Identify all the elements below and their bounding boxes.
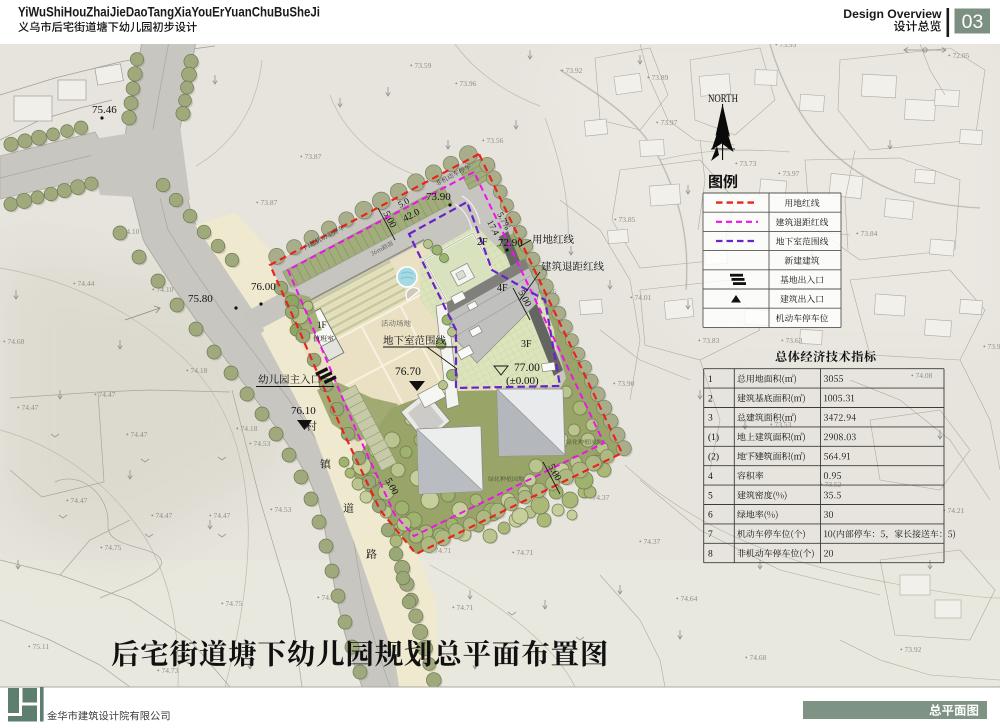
- svg-text:(2): (2): [708, 452, 719, 463]
- svg-text:2F: 2F: [477, 237, 488, 248]
- svg-text:75.46: 75.46: [92, 104, 117, 116]
- svg-text:• 74.75: • 74.75: [221, 599, 243, 608]
- svg-text:• 73.97: • 73.97: [778, 169, 800, 178]
- svg-text:• 73.73: • 73.73: [735, 159, 757, 168]
- svg-text:• 73.97: • 73.97: [656, 118, 678, 127]
- svg-text:• 74.53: • 74.53: [270, 505, 292, 514]
- svg-text:• 74.21: • 74.21: [943, 506, 965, 515]
- svg-text:• 75.11: • 75.11: [28, 642, 49, 651]
- svg-text:• 73.56: • 73.56: [482, 136, 504, 145]
- svg-text:• 73.83: • 73.83: [698, 336, 720, 345]
- svg-text:• 74.73: • 74.73: [157, 666, 179, 675]
- svg-text:76.10: 76.10: [291, 405, 316, 417]
- svg-text:• 73.92: • 73.92: [983, 342, 1000, 351]
- svg-text:• 74.47: • 74.47: [209, 511, 231, 520]
- svg-text:YiWuShiHouZhaiJieDaoTangXiaYou: YiWuShiHouZhaiJieDaoTangXiaYouErYuanChuB…: [18, 4, 320, 20]
- svg-text:3: 3: [708, 414, 713, 424]
- svg-text:• 74.47: • 74.47: [151, 511, 173, 520]
- svg-text:• 73.84: • 73.84: [856, 229, 878, 238]
- svg-text:• 74.37: • 74.37: [639, 537, 661, 546]
- svg-text:75.80: 75.80: [188, 293, 213, 305]
- svg-text:3F: 3F: [521, 339, 532, 350]
- svg-text:• 74.47: • 74.47: [17, 403, 39, 412]
- svg-text:5: 5: [708, 491, 713, 501]
- svg-text:1: 1: [708, 375, 713, 385]
- svg-text:• 74.71: • 74.71: [452, 603, 474, 612]
- svg-text:NORTH: NORTH: [708, 93, 738, 105]
- svg-text:• 73.63: • 73.63: [781, 336, 803, 345]
- svg-text:77.00: 77.00: [514, 362, 540, 374]
- svg-text:1F: 1F: [317, 320, 327, 330]
- svg-text:4: 4: [708, 472, 713, 482]
- svg-text:72.90: 72.90: [498, 237, 523, 249]
- svg-text:• 74.44: • 74.44: [73, 279, 95, 288]
- svg-text:2: 2: [708, 394, 713, 404]
- svg-text:• 73.87: • 73.87: [300, 152, 322, 161]
- svg-text:7: 7: [708, 530, 713, 540]
- svg-text:• 73.59: • 73.59: [410, 61, 432, 70]
- svg-text:76.00: 76.00: [251, 281, 276, 293]
- svg-text:• 74.18: • 74.18: [236, 424, 258, 433]
- svg-text:• 73.89: • 73.89: [647, 73, 669, 82]
- svg-text:• 73.87: • 73.87: [256, 198, 278, 207]
- svg-text:• 73.90: • 73.90: [613, 379, 635, 388]
- svg-text:• 74.08: • 74.08: [911, 371, 933, 380]
- svg-text:Design Overview: Design Overview: [843, 7, 942, 21]
- svg-text:• 72.05: • 72.05: [948, 51, 970, 60]
- svg-text:6: 6: [708, 511, 713, 521]
- svg-text:76.70: 76.70: [395, 366, 421, 378]
- svg-text:(1): (1): [708, 432, 719, 443]
- svg-text:• 74.18: • 74.18: [186, 366, 208, 375]
- svg-text:(±0.00): (±0.00): [506, 375, 539, 387]
- svg-text:• 73.53: • 73.53: [770, 420, 792, 429]
- svg-text:• 74.47: • 74.47: [66, 496, 88, 505]
- svg-text:03: 03: [962, 11, 984, 33]
- svg-text:• 74.68: • 74.68: [745, 653, 767, 662]
- svg-text:• 73.85: • 73.85: [614, 215, 636, 224]
- svg-text:• 73.92: • 73.92: [900, 645, 922, 654]
- svg-text:• 73.52: • 73.52: [745, 450, 767, 459]
- svg-text:• 74.68: • 74.68: [3, 337, 25, 346]
- svg-text:8: 8: [708, 550, 713, 560]
- svg-text:• 74.53: • 74.53: [249, 439, 271, 448]
- svg-text:73.90: 73.90: [426, 191, 451, 203]
- svg-text:• 73.52: • 73.52: [820, 480, 842, 489]
- svg-text:• 74.64: • 74.64: [676, 594, 698, 603]
- svg-text:• 74.01: • 74.01: [630, 293, 652, 302]
- svg-text:• 74.47: • 74.47: [126, 430, 148, 439]
- svg-text:• 74.47: • 74.47: [94, 390, 116, 399]
- svg-text:• 74.71: • 74.71: [512, 548, 534, 557]
- svg-text:4F: 4F: [497, 283, 508, 294]
- svg-text:• 73.96: • 73.96: [455, 79, 477, 88]
- svg-text:• 74.75: • 74.75: [100, 543, 122, 552]
- svg-text:• 73.92: • 73.92: [561, 66, 583, 75]
